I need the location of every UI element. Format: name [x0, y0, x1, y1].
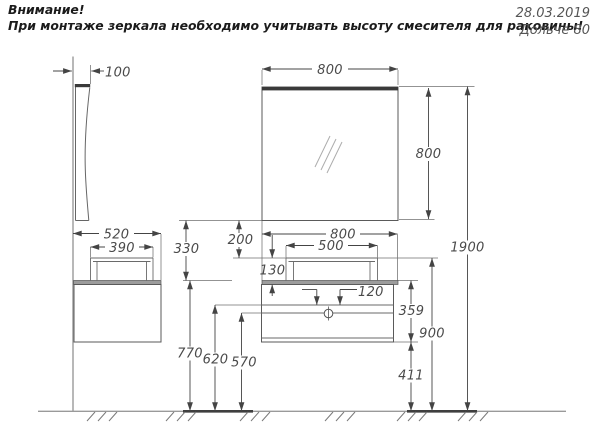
- sink-front-view: [286, 258, 378, 281]
- vanity-side-view: [74, 258, 162, 342]
- dim-mirror-to-sink-label: 200: [228, 233, 254, 248]
- model-name: Дольче 80: [516, 22, 590, 39]
- dim-cabinet-height-label: 359: [399, 304, 425, 319]
- dim-mirror-depth-label: 100: [105, 66, 131, 81]
- warning-note-body: При монтаже зеркала необходимо учитывать…: [8, 18, 583, 34]
- dim-drain-height-upper-label: 620: [203, 353, 229, 368]
- dim-sink-depth-label: 390: [109, 241, 135, 256]
- warning-note: Внимание! При монтаже зеркала необходимо…: [8, 2, 583, 34]
- dim-counter-height-label: 770: [177, 347, 203, 362]
- dim-mirror-width-label: 800: [317, 63, 343, 78]
- dim-sink-top-height-label: 900: [419, 327, 445, 342]
- dim-mirror-height-label: 800: [416, 147, 442, 162]
- technical-drawing: 100 800 800 1900 520 390 330 200 800 500…: [0, 0, 600, 422]
- drawing-date: 28.03.2019: [516, 5, 590, 22]
- dim-sink-height-label: 130: [260, 264, 286, 279]
- title-stamp: 28.03.2019 Дольче 80: [516, 5, 590, 39]
- dim-drain-height-lower-label: 570: [231, 356, 257, 371]
- dim-drain-offset-label: 120: [358, 285, 384, 300]
- drawing-sheet: 100 800 800 1900 520 390 330 200 800 500…: [0, 0, 600, 422]
- dim-bottom-clearance-label: 411: [398, 369, 424, 384]
- floor-hatching: [87, 412, 488, 421]
- warning-note-title: Внимание!: [8, 2, 583, 18]
- dim-mirror-to-counter-label: 330: [174, 242, 200, 257]
- dim-sink-width-label: 500: [318, 239, 344, 254]
- mirror-side-view: [75, 84, 90, 221]
- sink-side-view: [91, 258, 154, 281]
- dim-total-height-label: 1900: [450, 241, 484, 256]
- mirror-front-view: [262, 87, 398, 221]
